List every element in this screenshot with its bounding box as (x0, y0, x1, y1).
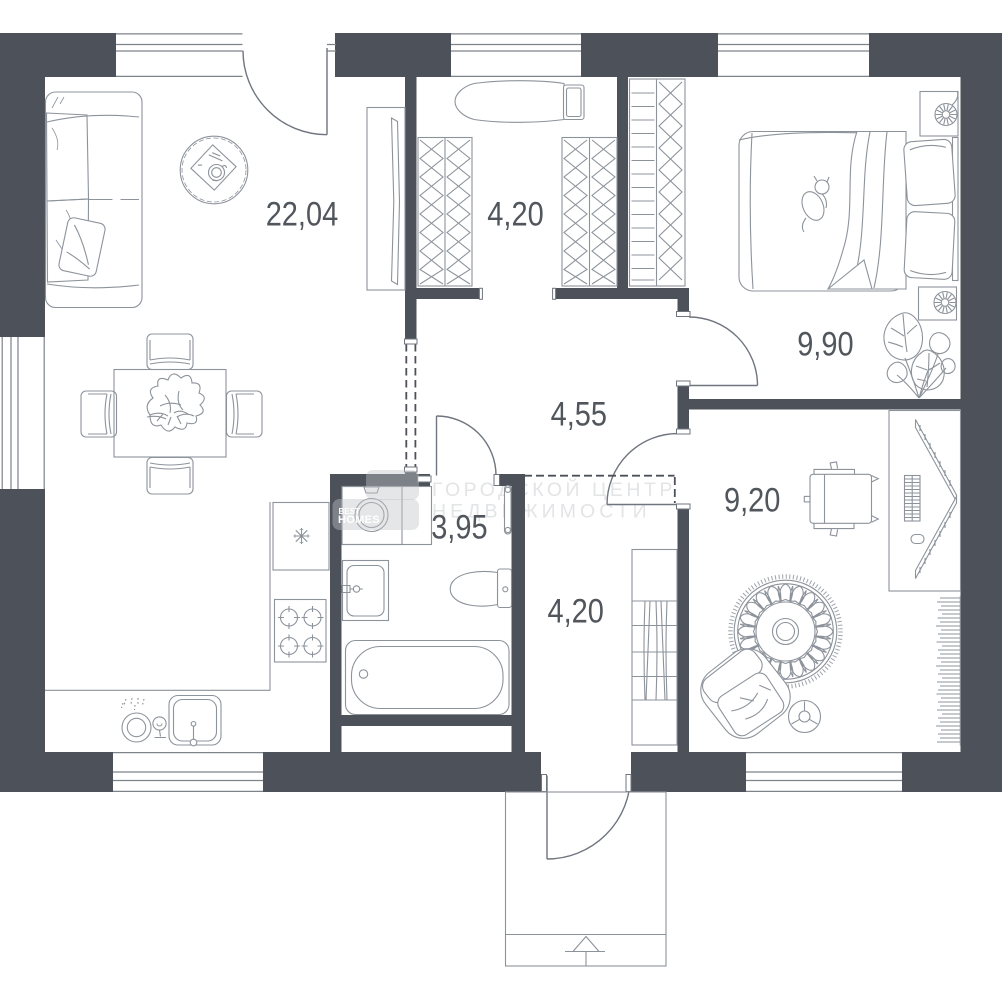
svg-text:9,90: 9,90 (797, 324, 853, 363)
svg-text:HOMES: HOMES (338, 514, 380, 526)
svg-text:ГОРОДСКОЙ ЦЕНТР: ГОРОДСКОЙ ЦЕНТР (432, 477, 676, 501)
svg-text:4,20: 4,20 (548, 591, 604, 630)
svg-text:4,55: 4,55 (551, 394, 607, 433)
svg-text:9,20: 9,20 (724, 480, 780, 519)
svg-text:4,20: 4,20 (487, 194, 543, 233)
svg-text:22,04: 22,04 (266, 194, 338, 233)
svg-text:3,95: 3,95 (431, 507, 487, 546)
